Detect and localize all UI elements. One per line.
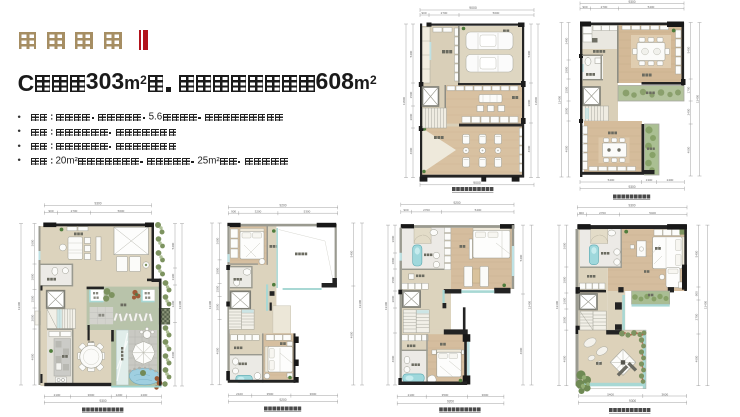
svg-text:13400: 13400 [178,300,182,309]
svg-text:9300: 9300 [94,202,101,206]
svg-text:5300: 5300 [304,210,311,214]
svg-text:13400: 13400 [384,301,388,310]
svg-text:3200: 3200 [255,210,262,214]
svg-text:4600: 4600 [216,347,220,354]
svg-text:1500: 1500 [216,285,220,292]
svg-text:5400: 5400 [409,50,413,57]
svg-text:4600: 4600 [349,331,353,338]
svg-text:5400: 5400 [349,250,353,257]
svg-text:2100: 2100 [408,393,415,397]
svg-text:900: 900 [579,211,584,215]
svg-text:13400: 13400 [17,301,21,310]
svg-text:2000: 2000 [565,107,569,114]
svg-text:9000: 9000 [473,181,481,185]
svg-text:900: 900 [403,208,408,212]
svg-text:1500: 1500 [565,86,569,93]
svg-text:9300: 9300 [99,399,106,403]
svg-text:4600: 4600 [31,353,35,360]
svg-text:2700: 2700 [599,211,606,215]
svg-text:5400: 5400 [171,242,175,249]
svg-text:2700: 2700 [71,209,78,213]
svg-text:5400: 5400 [608,178,615,182]
svg-text:2000: 2000 [562,316,566,323]
svg-text:4600: 4600 [565,145,569,152]
svg-text:9200: 9200 [279,398,286,402]
svg-text:2000: 2000 [31,314,35,321]
svg-text:1300: 1300 [171,273,175,280]
svg-text:3600: 3600 [216,237,220,244]
svg-text:1800: 1800 [565,66,569,73]
svg-text:5400: 5400 [694,250,698,257]
svg-text:13400: 13400 [208,300,212,309]
svg-text:900: 900 [421,11,426,15]
svg-text:9300: 9300 [628,204,635,208]
svg-text:9300: 9300 [628,0,635,4]
svg-text:3600: 3600 [31,239,35,246]
svg-text:5600: 5600 [493,11,500,15]
svg-text:4600: 4600 [562,355,566,362]
svg-text:11800: 11800 [402,97,406,105]
svg-text:9300: 9300 [629,399,636,403]
svg-text:9200: 9200 [279,204,286,208]
svg-text:2700: 2700 [441,11,448,15]
svg-text:5600: 5600 [118,209,125,213]
svg-text:1200: 1200 [171,300,175,307]
svg-text:13400: 13400 [558,95,562,104]
svg-text:1800: 1800 [216,267,220,274]
svg-text:900: 900 [694,291,698,296]
svg-text:13400: 13400 [556,300,559,309]
svg-text:5400: 5400 [687,46,691,53]
svg-text:1300: 1300 [646,178,653,182]
svg-text:4600: 4600 [687,146,691,153]
svg-text:1800: 1800 [31,273,35,280]
svg-text:9300: 9300 [628,185,635,189]
svg-text:5400: 5400 [475,208,482,212]
svg-text:3600: 3600 [310,392,317,396]
svg-text:5400: 5400 [649,211,656,215]
svg-text:2700: 2700 [601,5,608,9]
svg-text:900: 900 [582,5,587,9]
svg-text:1600: 1600 [562,297,566,304]
svg-text:13400: 13400 [358,299,362,308]
svg-text:4600: 4600 [171,351,175,358]
svg-text:1800: 1800 [391,257,395,264]
svg-text:9000: 9000 [469,6,477,10]
svg-text:3600: 3600 [391,235,395,242]
svg-text:2000: 2000 [409,113,413,120]
svg-text:3600: 3600 [527,99,531,106]
svg-text:13400: 13400 [696,94,700,103]
svg-text:3600: 3600 [661,392,668,396]
svg-text:3400: 3400 [565,37,569,44]
svg-text:4600: 4600 [694,355,698,362]
svg-text:5400: 5400 [527,50,531,57]
svg-text:9200: 9200 [453,201,460,205]
svg-text:1500: 1500 [31,295,35,302]
svg-text:4600: 4600 [391,355,395,362]
svg-text:2400: 2400 [667,178,674,182]
svg-text:3600: 3600 [482,393,489,397]
svg-text:4600: 4600 [527,145,531,152]
svg-text:2400: 2400 [687,108,691,115]
svg-text:4600: 4600 [519,347,523,354]
svg-text:2700: 2700 [694,313,698,320]
svg-text:900: 900 [231,210,236,214]
svg-text:5400: 5400 [519,254,523,261]
svg-text:1700: 1700 [687,86,691,93]
svg-text:2100: 2100 [236,392,243,396]
svg-text:2000: 2000 [216,303,220,310]
svg-text:2100: 2100 [54,393,61,397]
svg-text:3600: 3600 [562,242,566,249]
svg-text:1500: 1500 [391,276,395,283]
svg-text:2400: 2400 [141,393,148,397]
svg-text:5400: 5400 [607,392,614,396]
svg-text:13400: 13400 [528,300,532,309]
svg-text:1800: 1800 [562,276,566,283]
svg-text:5400: 5400 [648,5,655,9]
svg-text:3600: 3600 [88,393,95,397]
svg-text:4600: 4600 [409,147,413,154]
svg-text:900: 900 [48,209,53,213]
svg-text:2000: 2000 [391,295,395,302]
svg-text:11800: 11800 [534,97,538,105]
svg-text:3500: 3500 [442,393,449,397]
svg-text:1200: 1200 [116,393,123,397]
svg-text:1500: 1500 [409,91,413,98]
svg-text:2700: 2700 [423,208,430,212]
svg-text:13400: 13400 [703,300,707,309]
svg-text:9200: 9200 [447,400,454,404]
svg-text:3500: 3500 [267,392,274,396]
